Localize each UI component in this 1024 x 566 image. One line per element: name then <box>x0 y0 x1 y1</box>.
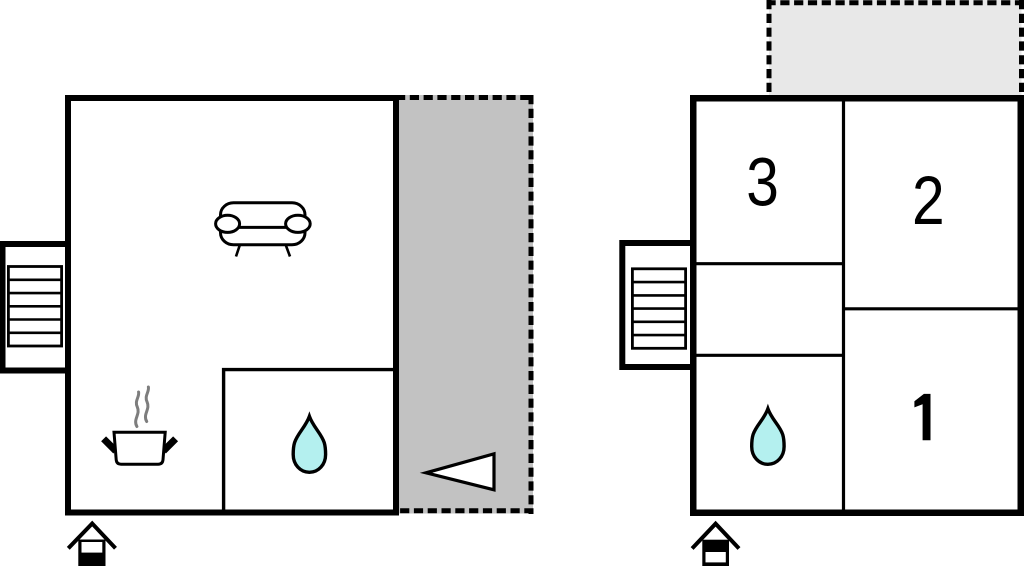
svg-text:3: 3 <box>746 143 779 221</box>
svg-text:2: 2 <box>912 162 945 240</box>
